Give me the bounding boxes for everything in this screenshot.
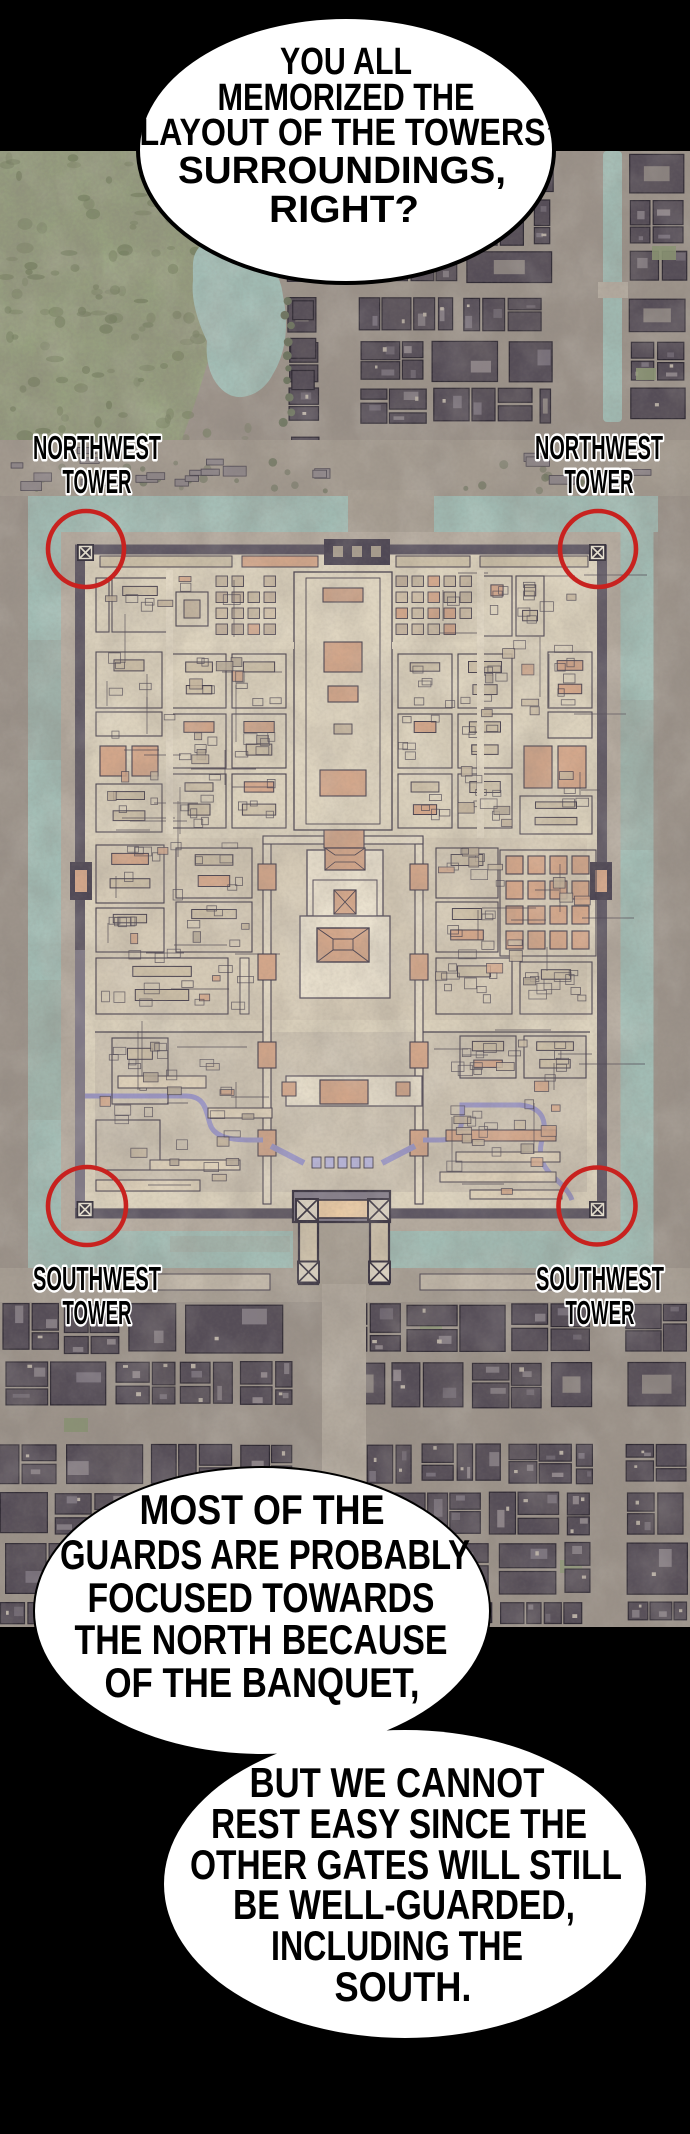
svg-text:THE NORTH BECAUSE: THE NORTH BECAUSE xyxy=(75,1616,448,1663)
svg-text:REST EASY SINCE THE: REST EASY SINCE THE xyxy=(211,1800,587,1847)
svg-text:NORTHWEST: NORTHWEST xyxy=(535,429,663,466)
svg-text:SOUTHWEST: SOUTHWEST xyxy=(33,1260,161,1297)
svg-text:SOUTH.: SOUTH. xyxy=(335,1963,472,2010)
svg-text:INCLUDING THE: INCLUDING THE xyxy=(271,1922,523,1969)
svg-text:TOWER: TOWER xyxy=(566,1294,635,1331)
svg-text:SOUTHWEST: SOUTHWEST xyxy=(536,1260,664,1297)
svg-text:OF THE BANQUET,: OF THE BANQUET, xyxy=(105,1659,420,1706)
svg-text:RIGHT?: RIGHT? xyxy=(269,189,419,231)
svg-text:TOWER: TOWER xyxy=(63,1294,132,1331)
svg-text:FOCUSED TOWARDS: FOCUSED TOWARDS xyxy=(88,1574,435,1621)
svg-text:TOWER: TOWER xyxy=(63,463,132,500)
svg-text:LAYOUT OF THE TOWERS’: LAYOUT OF THE TOWERS’ xyxy=(140,112,555,154)
svg-text:SURROUNDINGS,: SURROUNDINGS, xyxy=(178,150,506,192)
svg-text:NORTHWEST: NORTHWEST xyxy=(33,429,161,466)
svg-text:BUT WE CANNOT: BUT WE CANNOT xyxy=(250,1759,545,1806)
svg-text:TOWER: TOWER xyxy=(565,463,634,500)
svg-text:MOST OF THE: MOST OF THE xyxy=(140,1486,385,1533)
svg-text:GUARDS ARE PROBABLY: GUARDS ARE PROBABLY xyxy=(60,1531,470,1578)
svg-text:BE WELL-GUARDED,: BE WELL-GUARDED, xyxy=(233,1881,575,1928)
